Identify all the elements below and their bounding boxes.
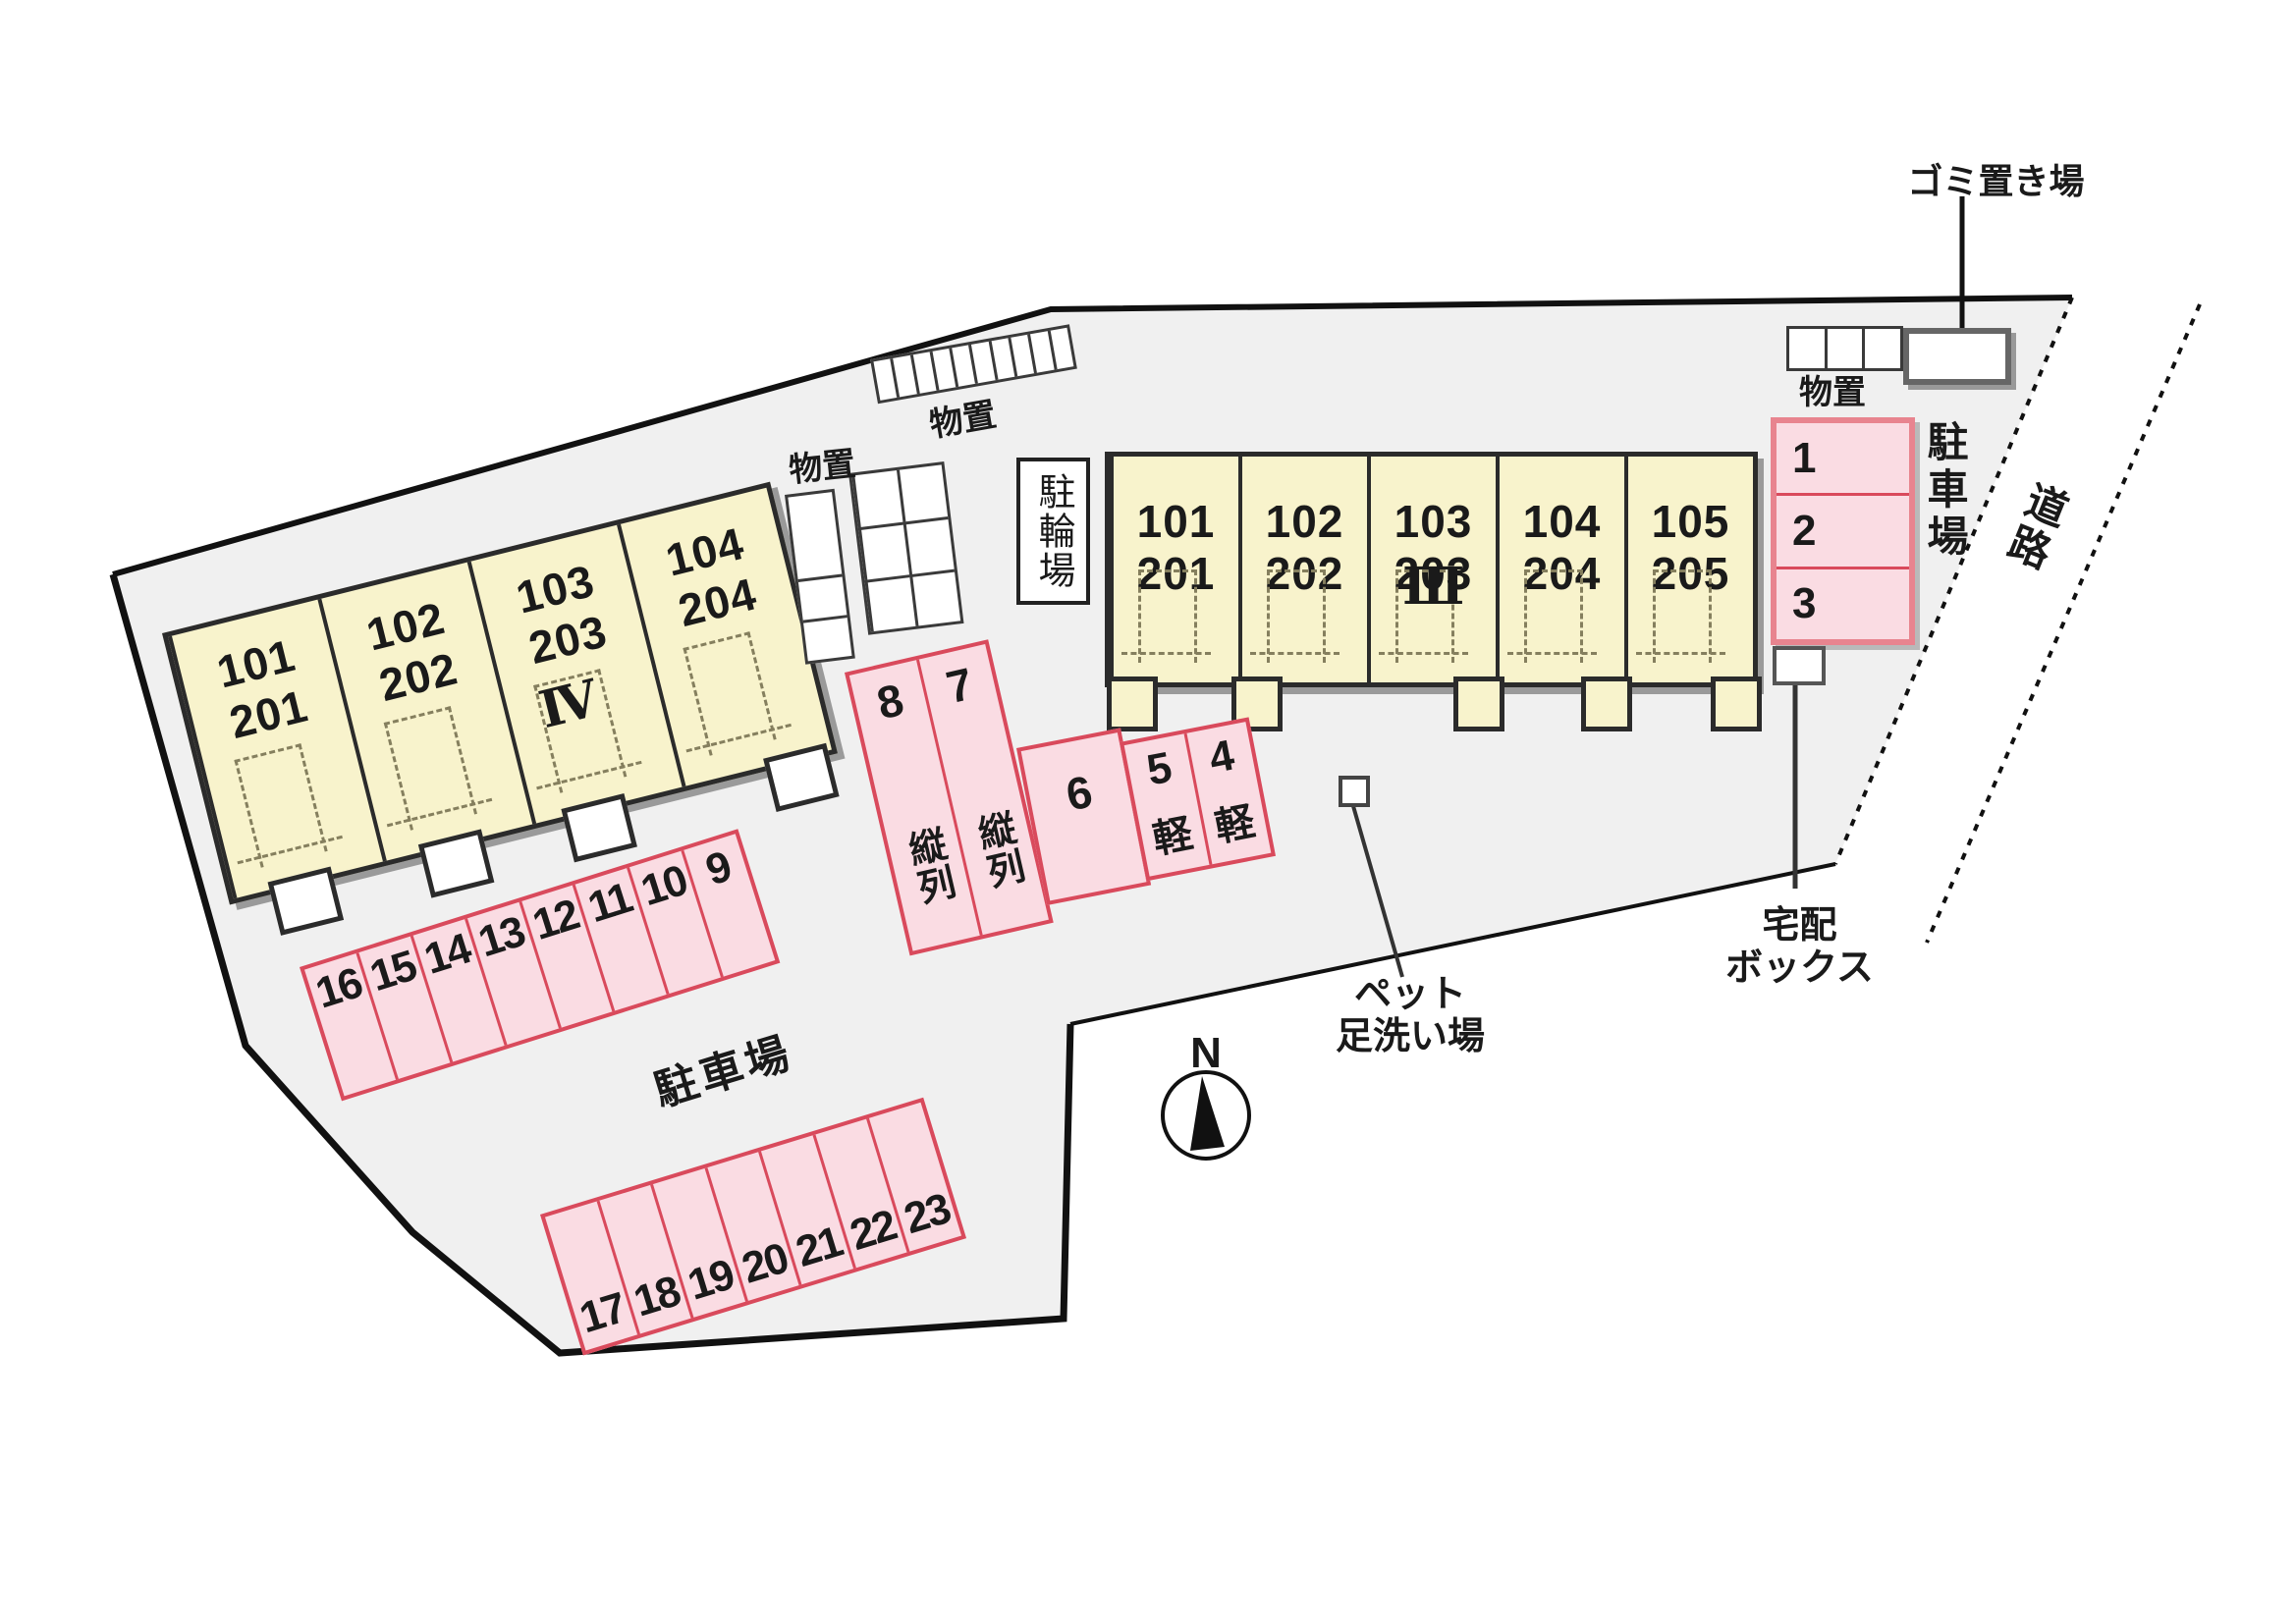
building-iii-porch [1581, 676, 1632, 731]
label-text: 9 [700, 842, 736, 895]
label-text: 101 [1137, 496, 1216, 548]
building-iii-unit: 104204 [1496, 457, 1624, 682]
label-text: 104 [1523, 496, 1602, 548]
storage-cell [902, 516, 954, 574]
space-number: 8 [872, 673, 908, 730]
delivery-box-label: 宅配 ボックス [1719, 905, 1881, 990]
site-plan-canvas: Ⅳ 101201102202103203104204 Ⅲ 10120110220… [0, 0, 2296, 1623]
label-text: 202 [1266, 548, 1344, 600]
storage-cell [803, 615, 852, 661]
label-text: 2 [1792, 507, 1816, 556]
label-text: 204 [1523, 548, 1602, 600]
storage-cell [1789, 329, 1825, 368]
storage-shed-grid-b [848, 461, 963, 635]
label-text: 103 [1394, 496, 1473, 548]
pet-wash-label-line2: 足洗い場 [1306, 1016, 1514, 1058]
storage-cell [851, 470, 902, 528]
storage-cell [798, 574, 847, 621]
space-number: 7 [942, 657, 978, 714]
kei-label: 軽 [1210, 789, 1259, 853]
label-text: 10 [635, 856, 692, 916]
parking-space: 2 [1777, 493, 1909, 566]
storage-cell [788, 492, 837, 538]
building-iii-unit: 105205 [1624, 457, 1753, 682]
storage-cell [858, 522, 909, 580]
parking-lot-label-vertical: 駐車場 [1915, 420, 1975, 562]
label-text: 3 [1792, 579, 1816, 628]
label-text: 105 [1652, 496, 1730, 548]
building-iii-numeral: Ⅲ [1402, 557, 1464, 617]
label-text: 20 [737, 1234, 793, 1294]
label-text: 23 [899, 1184, 956, 1244]
kei-label: 軽 [1147, 801, 1196, 865]
label-text: 19 [683, 1251, 739, 1311]
parking-kei-5-4: 5 軽 4 軽 [1120, 717, 1276, 881]
space-number: 5 [1143, 743, 1176, 796]
label-text: 18 [629, 1268, 685, 1327]
label-text: 22 [845, 1201, 902, 1261]
building-iii-unit: 101201 [1110, 457, 1238, 682]
label-text: 15 [364, 942, 421, 1001]
storage-cell [864, 574, 915, 632]
label-text: 12 [527, 891, 584, 950]
bicycle-parking-box: 駐輪場 [1016, 458, 1090, 605]
delivery-box-label-line2: ボックス [1719, 947, 1881, 990]
building-iii-porch [1107, 676, 1158, 731]
tandem-label: 縦列 [894, 823, 964, 911]
space-number: 4 [1205, 731, 1238, 784]
space-number: 6 [1062, 765, 1096, 822]
bicycle-parking-label: 駐輪場 [1026, 472, 1080, 590]
label-text: 11 [582, 874, 637, 933]
pet-wash-marker [1339, 776, 1370, 807]
building-iii-porch [1711, 676, 1762, 731]
label-text: 21 [791, 1217, 847, 1277]
storage-label: 物置 [1799, 365, 1866, 413]
storage-cell [909, 568, 960, 626]
label-text: 201 [1137, 548, 1216, 600]
label-text: 17 [574, 1283, 631, 1343]
storage-cell [1862, 329, 1900, 368]
parking-space: 1 [1777, 423, 1909, 493]
compass-north-label: N [1178, 1029, 1233, 1078]
delivery-box-label-line1: 宅配 [1719, 905, 1881, 947]
label-text: 1 [1792, 434, 1816, 483]
label-text: 205 [1652, 548, 1730, 600]
pet-wash-label: ペット 足洗い場 [1306, 974, 1514, 1058]
parking-block-1-3: 123 [1771, 417, 1915, 645]
building-iii-unit: 102202 [1238, 457, 1367, 682]
delivery-box-marker [1773, 646, 1826, 685]
storage-cell [897, 464, 948, 522]
label-text: 16 [310, 958, 367, 1018]
garbage-area-box [1903, 328, 2011, 385]
building-iii: Ⅲ 101201102202103203104204105205 [1105, 452, 1758, 687]
building-iii-porch [1453, 676, 1504, 731]
label-text: 14 [418, 925, 475, 985]
garbage-area-label: ゴミ置き場 [1905, 153, 2087, 204]
tandem-label: 縦列 [962, 806, 1033, 894]
storage-cell [1825, 329, 1863, 368]
label-text: 102 [1266, 496, 1344, 548]
storage-cell [793, 533, 842, 579]
storage-label: 物置 [787, 437, 858, 492]
pet-wash-label-line1: ペット [1306, 974, 1514, 1016]
parking-space: 3 [1777, 567, 1909, 639]
label-text: 13 [473, 907, 530, 967]
